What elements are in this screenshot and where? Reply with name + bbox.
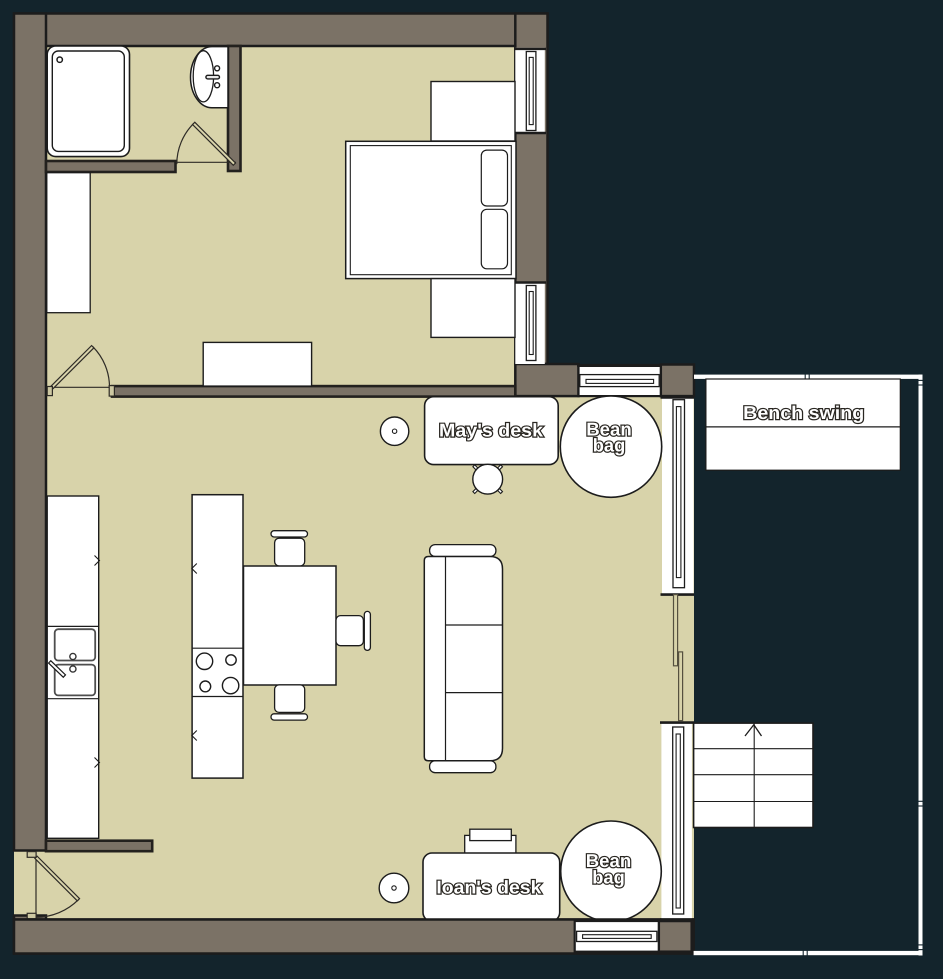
svg-text:bag: bag xyxy=(593,435,626,456)
svg-text:bag: bag xyxy=(592,867,625,888)
svg-text:Bench swing: Bench swing xyxy=(743,402,864,423)
svg-text:May's desk: May's desk xyxy=(439,420,544,441)
svg-text:Ioan's desk: Ioan's desk xyxy=(436,877,542,898)
